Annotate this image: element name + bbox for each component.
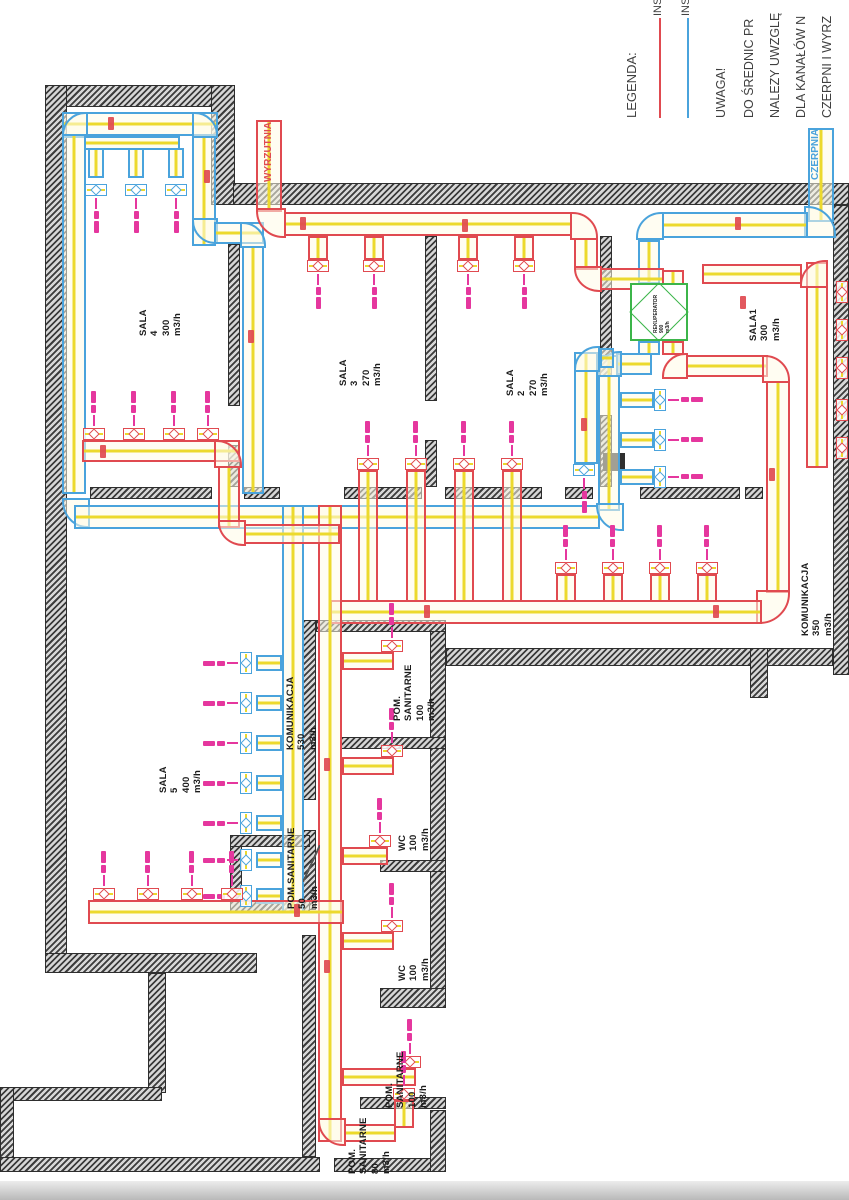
air-diffuser: [203, 651, 252, 675]
diffuser-grille-icon: [654, 429, 666, 451]
diffuser-leader-mark: [317, 274, 319, 285]
wall-segment: [745, 487, 763, 499]
air-diffuser: [654, 465, 703, 489]
supply-duct-elbow: [570, 212, 598, 240]
diffuser-valve-icon: [560, 562, 571, 573]
diffuser-valve-icon: [240, 697, 251, 708]
diffuser-valve-icon: [836, 362, 847, 373]
diffuser-leader-mark: [174, 221, 179, 233]
diffuser-leader-mark: [95, 198, 97, 209]
diffuser-valve-icon: [170, 184, 181, 195]
diffuser-grille-icon: [83, 428, 105, 440]
diffuser-leader-mark: [681, 475, 689, 480]
diffuser-leader-mark: [146, 851, 151, 863]
diffuser-leader-mark: [203, 661, 215, 666]
diffuser-leader-mark: [217, 741, 225, 746]
wall-segment: [380, 860, 446, 872]
air-diffuser: [356, 421, 380, 470]
diffuser-leader-mark: [94, 211, 99, 219]
note-line-4: CZERPNI I WYRZ: [820, 16, 835, 118]
air-diffuser: [648, 525, 672, 574]
diffuser-leader-mark: [102, 865, 107, 873]
diffuser-leader-mark: [203, 701, 215, 706]
diffuser-grille-icon: [654, 389, 666, 411]
duct-size-tag: [769, 468, 775, 481]
supply-duct-segment: [318, 505, 342, 1142]
air-intake-label: CZERPNIA: [810, 129, 822, 180]
diffuser-valve-icon: [578, 464, 589, 475]
duct-size-tag: [462, 219, 468, 232]
diffuser-leader-mark: [217, 821, 225, 826]
supply-duct-segment: [284, 212, 572, 236]
wall-segment: [425, 236, 437, 401]
exhaust-duct-segment: [600, 348, 614, 368]
diffuser-grille-icon: [453, 458, 475, 470]
diffuser-leader-mark: [705, 539, 710, 547]
supply-duct-segment: [686, 355, 768, 377]
diffuser-leader-mark: [367, 445, 369, 456]
diffuser-leader-mark: [658, 525, 663, 537]
diffuser-leader-mark: [227, 782, 238, 784]
diffuser-grille-icon: [369, 835, 391, 847]
diffuser-valve-icon: [506, 458, 517, 469]
diffuser-valve-icon: [701, 562, 712, 573]
exhaust-duct-segment: [242, 246, 264, 494]
diffuser-leader-mark: [135, 198, 137, 209]
duct-size-tag: [713, 605, 719, 618]
diffuser-leader-mark: [467, 274, 469, 285]
supply-duct-segment: [244, 524, 340, 544]
diffuser-leader-mark: [379, 822, 381, 833]
room-label: KOMUNIKACJA 350 m3/h: [800, 563, 834, 636]
diffuser-leader-mark: [611, 539, 616, 547]
room-label: SALA 2 270 m3/h: [505, 369, 551, 396]
note-line-2: NALEZY UWZGLĘ: [768, 13, 783, 118]
diffuser-leader-mark: [511, 445, 513, 456]
ventilation-plan-page: LEGENDA: INSTA INSTA UWAGA! DO ŚREDNIC P…: [0, 0, 849, 1200]
diffuser-grille-icon: [501, 458, 523, 470]
diffuser-leader-mark: [668, 439, 679, 441]
duct-size-tag: [204, 170, 210, 183]
diffuser-leader-mark: [373, 274, 375, 285]
diffuser-leader-mark: [147, 875, 149, 886]
diffuser-valve-icon: [240, 777, 251, 788]
diffuser-grille-icon: [221, 888, 243, 900]
diffuser-grille-icon: [836, 437, 848, 459]
room-label: POM.SANITARNE 50 m3/h: [286, 827, 320, 909]
supply-duct-segment: [603, 574, 623, 602]
diffuser-leader-mark: [203, 858, 215, 863]
room-label: KOMUNIKACJA 530 m3/h: [285, 677, 319, 750]
diffuser-leader-mark: [691, 398, 703, 403]
diffuser-leader-mark: [173, 415, 175, 426]
air-diffuser: [452, 421, 476, 470]
diffuser-leader-mark: [390, 883, 395, 895]
diffuser-grille-icon: [240, 772, 252, 794]
diffuser-grille-icon: [197, 428, 219, 440]
diffuser-valve-icon: [130, 184, 141, 195]
diffuser-grille-icon: [555, 562, 577, 574]
air-diffuser: [654, 428, 703, 452]
wall-segment: [148, 973, 166, 1093]
supply-duct-segment: [697, 574, 717, 602]
wall-segment: [45, 953, 257, 973]
diffuser-grille-icon: [163, 428, 185, 440]
diffuser-leader-mark: [668, 476, 679, 478]
exhaust-duct-segment: [88, 148, 104, 178]
exhaust-duct-segment: [168, 148, 184, 178]
diffuser-leader-mark: [522, 287, 527, 295]
diffuser-grille-icon: [602, 562, 624, 574]
exhaust-duct-segment: [256, 695, 282, 711]
diffuser-leader-mark: [366, 435, 371, 443]
diffuser-leader-mark: [134, 221, 139, 233]
air-diffuser: [84, 184, 108, 233]
diffuser-leader-mark: [466, 297, 471, 309]
diffuser-leader-mark: [217, 701, 225, 706]
air-diffuser: [654, 388, 703, 412]
wall-segment: [45, 85, 235, 107]
diffuser-grille-icon: [137, 888, 159, 900]
legend-title: LEGENDA:: [624, 52, 639, 118]
diffuser-leader-mark: [705, 525, 710, 537]
air-diffuser: [456, 260, 480, 309]
supply-duct-segment: [308, 236, 328, 260]
diffuser-leader-mark: [390, 603, 395, 615]
air-diffuser: [203, 811, 252, 835]
room-label: SALA1 300 m3/h: [748, 309, 782, 341]
air-diffuser: [203, 691, 252, 715]
diffuser-leader-mark: [203, 821, 215, 826]
diffuser-valve-icon: [142, 888, 153, 899]
diffuser-leader-mark: [92, 391, 97, 403]
wall-segment: [380, 988, 446, 1008]
wall-segment: [90, 487, 212, 499]
diffuser-leader-mark: [391, 732, 393, 743]
diffuser-grille-icon: [240, 812, 252, 834]
wall-segment: [302, 935, 316, 1157]
duct-size-tag: [248, 330, 254, 343]
diffuser-leader-mark: [414, 421, 419, 433]
diffuser-leader-mark: [414, 435, 419, 443]
diffuser-leader-mark: [391, 907, 393, 918]
air-diffuser: [554, 525, 578, 574]
exhaust-outlet-label: WYRZUTNIA: [263, 122, 275, 182]
note-line-3: DLA KANAŁÓW N: [794, 16, 809, 118]
supply-duct-elbow: [218, 520, 246, 546]
diffuser-grille-icon: [85, 184, 107, 196]
air-diffuser: [695, 525, 719, 574]
supply-duct-segment: [218, 466, 240, 528]
supply-duct-segment: [342, 847, 388, 865]
diffuser-leader-mark: [463, 445, 465, 456]
diffuser-valve-icon: [836, 404, 847, 415]
diffuser-grille-icon: [125, 184, 147, 196]
diffuser-valve-icon: [240, 817, 251, 828]
air-diffuser: [124, 184, 148, 233]
air-diffuser: [82, 391, 106, 440]
room-label: WC 100 m3/h: [397, 828, 431, 851]
diffuser-leader-mark: [227, 822, 238, 824]
diffuser-grille-icon: [836, 357, 848, 379]
air-diffuser: [380, 603, 404, 652]
exhaust-duct-elbow: [636, 212, 664, 240]
diffuser-leader-mark: [408, 1033, 413, 1041]
exhaust-duct-segment: [256, 815, 282, 831]
diffuser-leader-mark: [227, 662, 238, 664]
diffuser-leader-mark: [132, 391, 137, 403]
duct-size-tag: [581, 418, 587, 431]
diffuser-grille-icon: [93, 888, 115, 900]
diffuser-leader-mark: [103, 875, 105, 886]
supply-duct-segment: [458, 236, 478, 260]
duct-size-tag: [735, 217, 741, 230]
diffuser-valve-icon: [654, 471, 665, 482]
diffuser-grille-icon: [363, 260, 385, 272]
duct-size-tag: [740, 296, 746, 309]
diffuser-valve-icon: [374, 835, 385, 846]
diffuser-leader-mark: [462, 421, 467, 433]
diffuser-leader-mark: [316, 297, 321, 309]
diffuser-grille-icon: [123, 428, 145, 440]
diffuser-grille-icon: [836, 399, 848, 421]
diffuser-leader-mark: [612, 549, 614, 560]
diffuser-valve-icon: [836, 442, 847, 453]
diffuser-valve-icon: [607, 562, 618, 573]
air-diffuser: [203, 771, 252, 795]
diffuser-leader-mark: [408, 1019, 413, 1031]
diffuser-leader-mark: [583, 478, 585, 489]
diffuser-valve-icon: [226, 888, 237, 899]
wall-segment: [0, 1157, 320, 1172]
diffuser-valve-icon: [168, 428, 179, 439]
diffuser-valve-icon: [386, 920, 397, 931]
exhaust-duct-segment: [256, 735, 282, 751]
diffuser-leader-mark: [227, 742, 238, 744]
diffuser-leader-mark: [203, 741, 215, 746]
diffuser-grille-icon: [457, 260, 479, 272]
diffuser-grille-icon: [654, 466, 666, 488]
legend-exhaust-line-sample: [687, 18, 689, 118]
diffuser-leader-mark: [582, 491, 587, 499]
diffuser-leader-mark: [510, 435, 515, 443]
air-diffuser: [404, 421, 428, 470]
scanner-edge-shadow: [0, 1181, 849, 1200]
wall-segment: [0, 1087, 162, 1101]
exhaust-duct-segment: [598, 355, 620, 511]
diffuser-leader-mark: [217, 781, 225, 786]
air-diffuser: [836, 436, 849, 460]
diffuser-valve-icon: [836, 286, 847, 297]
diffuser-leader-mark: [190, 865, 195, 873]
legend-supply-label: INSTA: [652, 0, 665, 16]
wall-segment: [750, 648, 768, 698]
diffuser-grille-icon: [573, 464, 595, 476]
diffuser-leader-mark: [134, 211, 139, 219]
exhaust-duct-segment: [256, 655, 282, 671]
diffuser-leader-mark: [681, 398, 689, 403]
diffuser-leader-mark: [227, 702, 238, 704]
exhaust-duct-segment: [256, 852, 282, 868]
diffuser-leader-mark: [207, 415, 209, 426]
diffuser-leader-mark: [668, 399, 679, 401]
duct-size-tag: [300, 217, 306, 230]
diffuser-valve-icon: [654, 562, 665, 573]
diffuser-grille-icon: [240, 692, 252, 714]
diffuser-leader-mark: [203, 894, 215, 899]
diffuser-valve-icon: [362, 458, 373, 469]
diffuser-leader-mark: [415, 445, 417, 456]
diffuser-valve-icon: [202, 428, 213, 439]
diffuser-valve-icon: [312, 260, 323, 271]
air-diffuser: [380, 883, 404, 932]
diffuser-valve-icon: [90, 184, 101, 195]
diffuser-leader-mark: [133, 415, 135, 426]
diffuser-leader-mark: [522, 297, 527, 309]
supply-duct-segment: [358, 470, 378, 602]
recuperator-label: REKUPERATOR 900 m3/h: [653, 295, 671, 333]
supply-duct-elbow: [762, 355, 790, 383]
diffuser-leader-mark: [390, 897, 395, 905]
air-diffuser: [92, 851, 116, 900]
diffuser-grille-icon: [381, 640, 403, 652]
diffuser-leader-mark: [175, 198, 177, 209]
wall-segment: [430, 1110, 446, 1172]
air-diffuser: [362, 260, 386, 309]
supply-duct-segment: [502, 470, 522, 602]
diffuser-leader-mark: [231, 875, 233, 886]
supply-duct-segment: [806, 262, 828, 468]
diffuser-grille-icon: [307, 260, 329, 272]
air-diffuser: [836, 318, 849, 342]
diffuser-leader-mark: [390, 617, 395, 625]
supply-duct-elbow: [800, 260, 828, 288]
exhaust-duct-elbow: [574, 346, 600, 372]
supply-duct-elbow: [574, 266, 602, 292]
diffuser-leader-mark: [372, 297, 377, 309]
exhaust-duct-segment: [620, 392, 654, 408]
supply-duct-segment: [342, 757, 394, 775]
diffuser-leader-mark: [206, 405, 211, 413]
supply-duct-segment: [342, 652, 394, 670]
diffuser-leader-mark: [378, 812, 383, 820]
supply-duct-segment: [406, 470, 426, 602]
diffuser-leader-mark: [691, 475, 703, 480]
diffuser-leader-mark: [206, 391, 211, 403]
diffuser-leader-mark: [102, 851, 107, 863]
supply-duct-elbow: [662, 353, 688, 379]
air-diffuser: [196, 391, 220, 440]
supply-duct-segment: [766, 381, 790, 593]
air-diffuser: [512, 260, 536, 309]
diffuser-valve-icon: [88, 428, 99, 439]
diffuser-leader-mark: [658, 539, 663, 547]
diffuser-leader-mark: [146, 865, 151, 873]
diffuser-grille-icon: [836, 319, 848, 341]
diffuser-leader-mark: [390, 722, 395, 730]
legend-supply-line-sample: [659, 18, 661, 118]
air-diffuser: [306, 260, 330, 309]
diffuser-valve-icon: [410, 458, 421, 469]
diffuser-valve-icon: [654, 394, 665, 405]
diffuser-leader-mark: [565, 549, 567, 560]
supply-duct-segment: [454, 470, 474, 602]
diffuser-leader-mark: [391, 627, 393, 638]
diffuser-grille-icon: [696, 562, 718, 574]
air-diffuser: [136, 851, 160, 900]
diffuser-leader-mark: [230, 865, 235, 873]
duct-size-tag: [100, 445, 106, 458]
diffuser-valve-icon: [98, 888, 109, 899]
diffuser-grille-icon: [381, 920, 403, 932]
air-diffuser: [601, 525, 625, 574]
diffuser-leader-mark: [191, 875, 193, 886]
room-label: SALA 4 300 m3/h: [138, 309, 184, 336]
room-label: SALA 3 270 m3/h: [338, 359, 384, 386]
air-diffuser: [836, 356, 849, 380]
supply-duct-segment: [650, 574, 670, 602]
air-diffuser: [836, 398, 849, 422]
diffuser-grille-icon: [405, 458, 427, 470]
diffuser-grille-icon: [357, 458, 379, 470]
diffuser-leader-mark: [691, 438, 703, 443]
diffuser-leader-mark: [366, 421, 371, 433]
diffuser-leader-mark: [92, 405, 97, 413]
exhaust-duct-segment: [256, 775, 282, 791]
diffuser-grille-icon: [513, 260, 535, 272]
duct-size-tag: [324, 758, 330, 771]
diffuser-valve-icon: [386, 745, 397, 756]
air-diffuser: [500, 421, 524, 470]
diffuser-leader-mark: [378, 798, 383, 810]
diffuser-leader-mark: [217, 661, 225, 666]
diffuser-valve-icon: [462, 260, 473, 271]
legend-exhaust-label: INSTA: [680, 0, 693, 16]
wall-segment: [228, 244, 240, 406]
room-label: POM. SANITARNE 100 m3/h: [384, 1051, 430, 1108]
air-diffuser: [836, 280, 849, 304]
air-diffuser: [162, 391, 186, 440]
diffuser-leader-mark: [203, 781, 215, 786]
diffuser-valve-icon: [386, 640, 397, 651]
diffuser-leader-mark: [706, 549, 708, 560]
diffuser-leader-mark: [190, 851, 195, 863]
exhaust-duct-segment: [620, 432, 654, 448]
diffuser-leader-mark: [93, 415, 95, 426]
diffuser-grille-icon: [381, 745, 403, 757]
wall-segment: [233, 183, 849, 205]
diffuser-valve-icon: [518, 260, 529, 271]
diffuser-grille-icon: [649, 562, 671, 574]
diffuser-leader-mark: [230, 851, 235, 863]
diffuser-leader-mark: [564, 539, 569, 547]
wall-segment: [446, 648, 833, 666]
diffuser-leader-mark: [523, 274, 525, 285]
exhaust-duct-segment: [128, 148, 144, 178]
duct-size-tag: [108, 117, 114, 130]
diffuser-grille-icon: [181, 888, 203, 900]
diffuser-leader-mark: [132, 405, 137, 413]
supply-duct-segment: [342, 932, 394, 950]
exhaust-duct-segment: [620, 469, 654, 485]
diffuser-grille-icon: [240, 732, 252, 754]
supply-duct-segment: [702, 264, 802, 284]
note-line-1: DO ŚREDNIC PR: [742, 19, 757, 118]
diffuser-leader-mark: [510, 421, 515, 433]
diffuser-leader-mark: [681, 438, 689, 443]
diffuser-valve-icon: [128, 428, 139, 439]
air-diffuser: [203, 731, 252, 755]
